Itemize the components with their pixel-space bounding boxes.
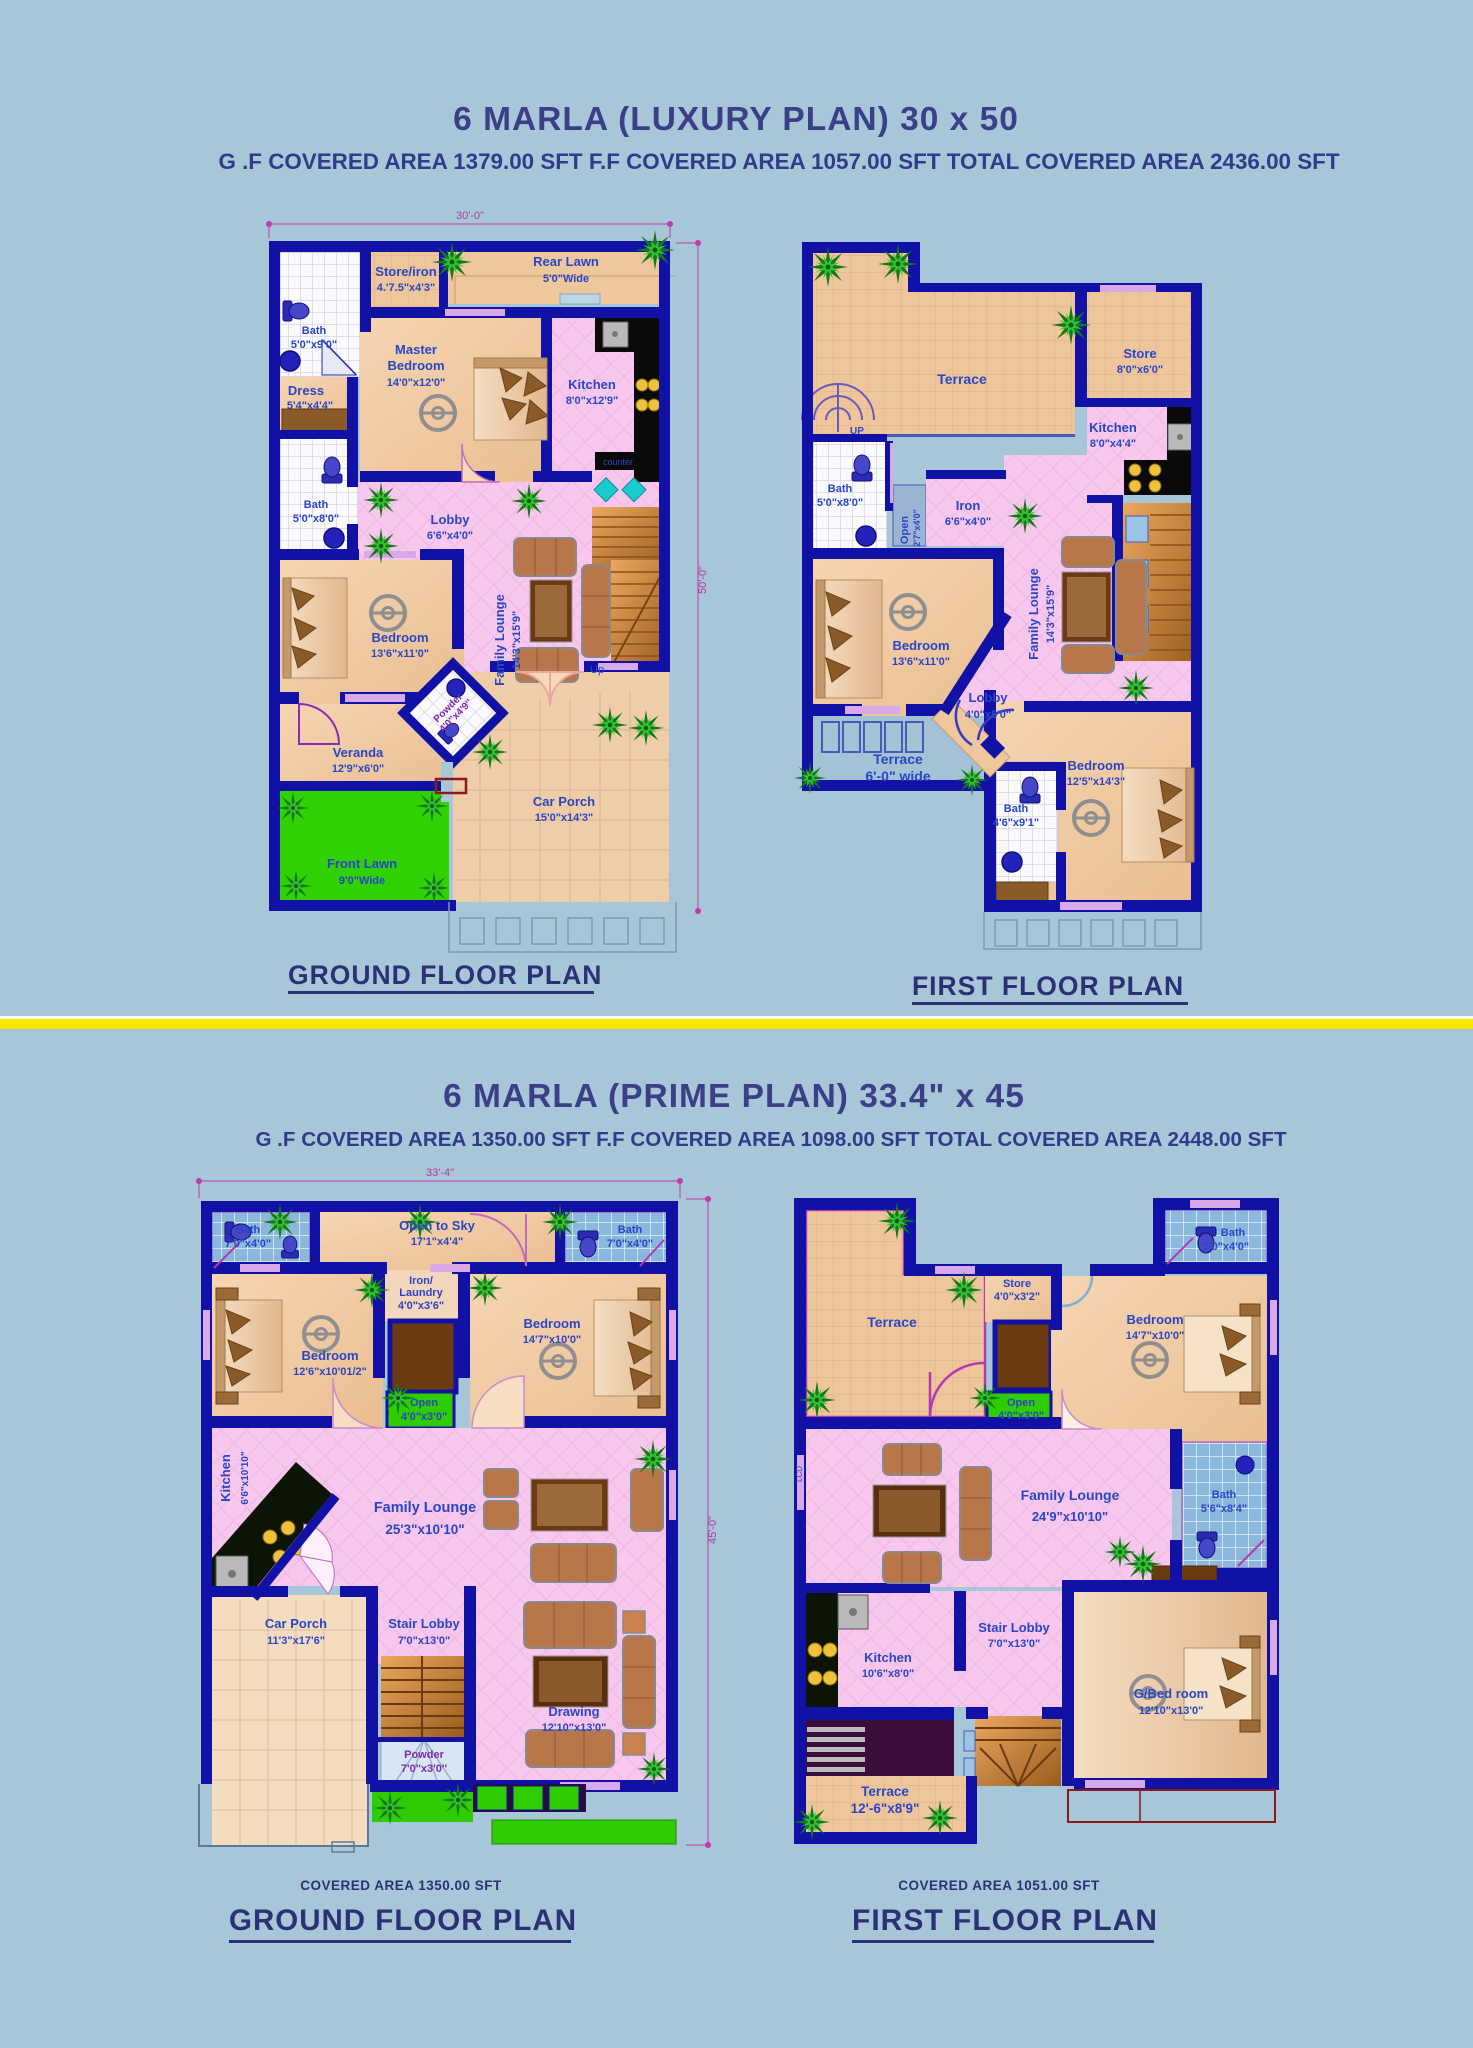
svg-text:Kitchen: Kitchen xyxy=(568,377,616,392)
svg-text:Stair Lobby: Stair Lobby xyxy=(388,1616,460,1631)
svg-text:FIRST FLOOR PLAN: FIRST FLOOR PLAN xyxy=(912,971,1184,1001)
svg-text:4'0"x3'0": 4'0"x3'0" xyxy=(401,1411,447,1423)
svg-text:7'0"x4'0": 7'0"x4'0" xyxy=(1203,1241,1249,1253)
svg-text:10'6"x8'0": 10'6"x8'0" xyxy=(862,1668,914,1680)
svg-text:Bath: Bath xyxy=(828,483,853,495)
svg-text:4.'7.5"x4'3": 4.'7.5"x4'3" xyxy=(377,282,435,294)
svg-text:6 MARLA (LUXURY PLAN) 30 x 50: 6 MARLA (LUXURY PLAN) 30 x 50 xyxy=(453,101,1019,138)
svg-text:17'1"x4'4": 17'1"x4'4" xyxy=(411,1236,463,1248)
svg-text:5'0"x8'0": 5'0"x8'0" xyxy=(817,497,863,509)
svg-text:G/Bed room: G/Bed room xyxy=(1134,1686,1208,1701)
svg-text:4'6"x9'1": 4'6"x9'1" xyxy=(993,817,1039,829)
svg-text:8'0"x12'9": 8'0"x12'9" xyxy=(566,395,618,407)
svg-text:FIRST FLOOR PLAN: FIRST FLOOR PLAN xyxy=(852,1904,1158,1937)
svg-text:13'6"x11'0": 13'6"x11'0" xyxy=(892,656,950,668)
svg-text:Car Porch: Car Porch xyxy=(533,794,595,809)
svg-text:LCD: LCD xyxy=(795,1466,804,1482)
svg-text:Family Lounge: Family Lounge xyxy=(1021,1487,1120,1503)
svg-text:Terrace: Terrace xyxy=(867,1314,917,1330)
svg-text:4'0"x3'0": 4'0"x3'0" xyxy=(998,1410,1044,1422)
svg-text:Store: Store xyxy=(1123,346,1156,361)
svg-text:13'6"x11'0": 13'6"x11'0" xyxy=(371,648,429,660)
svg-text:Family Lounge: Family Lounge xyxy=(1026,568,1041,660)
svg-text:6'6"x4'0": 6'6"x4'0" xyxy=(427,530,473,542)
svg-text:Open: Open xyxy=(410,1397,438,1409)
svg-text:Bath: Bath xyxy=(1221,1227,1246,1239)
svg-text:5'0"x9'0": 5'0"x9'0" xyxy=(291,339,337,351)
svg-text:4'0"x3'2": 4'0"x3'2" xyxy=(994,1291,1040,1303)
svg-text:50'-0": 50'-0" xyxy=(697,566,709,594)
svg-text:Bath: Bath xyxy=(302,325,327,337)
svg-text:2'7"x4'0": 2'7"x4'0" xyxy=(912,509,922,547)
svg-text:Stair Lobby: Stair Lobby xyxy=(978,1620,1050,1635)
svg-text:11'3"x17'6": 11'3"x17'6" xyxy=(267,1635,325,1647)
svg-text:Iron: Iron xyxy=(956,498,981,513)
svg-text:Open: Open xyxy=(899,516,911,544)
svg-text:Terrace: Terrace xyxy=(873,751,923,767)
svg-text:Kitchen: Kitchen xyxy=(218,1454,233,1502)
svg-text:7'0"x4'0": 7'0"x4'0" xyxy=(607,1238,653,1250)
svg-text:COVERED AREA 1051.00 SFT: COVERED AREA 1051.00 SFT xyxy=(898,1878,1100,1893)
svg-text:4'0"x3'6": 4'0"x3'6" xyxy=(398,1300,444,1312)
svg-text:Open to Sky: Open to Sky xyxy=(399,1218,476,1233)
svg-text:GROUND FLOOR PLAN: GROUND FLOOR PLAN xyxy=(288,960,602,990)
svg-text:12'9"x6'0": 12'9"x6'0" xyxy=(332,763,384,775)
svg-text:Kitchen: Kitchen xyxy=(864,1650,912,1665)
svg-text:Up: Up xyxy=(590,664,604,676)
svg-text:Bath: Bath xyxy=(618,1224,643,1236)
svg-text:6'6"x10'10": 6'6"x10'10" xyxy=(240,1451,251,1504)
svg-text:7'0"x13'0": 7'0"x13'0" xyxy=(988,1638,1040,1650)
svg-text:33'-4": 33'-4" xyxy=(426,1167,454,1179)
svg-text:25'3"x10'10": 25'3"x10'10" xyxy=(385,1522,464,1537)
svg-text:14'0"x12'0": 14'0"x12'0" xyxy=(387,377,446,389)
svg-text:Family Lounge: Family Lounge xyxy=(492,594,507,686)
svg-text:Rear Lawn: Rear Lawn xyxy=(533,254,599,269)
svg-text:Bath: Bath xyxy=(1004,803,1029,815)
svg-text:Bedroom: Bedroom xyxy=(1067,758,1124,773)
svg-text:Bath: Bath xyxy=(236,1224,261,1236)
svg-text:6 MARLA (PRIME PLAN) 33.4" x: 6 MARLA (PRIME PLAN) 33.4" x 45 xyxy=(443,1078,1025,1115)
svg-text:Car Porch: Car Porch xyxy=(265,1616,327,1631)
svg-text:Bedroom: Bedroom xyxy=(301,1348,358,1363)
svg-text:7'0"x13'0": 7'0"x13'0" xyxy=(398,1635,450,1647)
svg-text:G .F COVERED AREA 1379.00 SFT: G .F COVERED AREA 1379.00 SFT F.F COVERE… xyxy=(218,149,1339,174)
svg-text:GROUND FLOOR PLAN: GROUND FLOOR PLAN xyxy=(229,1904,577,1937)
svg-text:5'0"Wide: 5'0"Wide xyxy=(543,273,589,285)
svg-text:8'0"x4'4": 8'0"x4'4" xyxy=(1090,438,1136,450)
svg-text:8'0"x6'0": 8'0"x6'0" xyxy=(1117,364,1163,376)
svg-text:Iron/: Iron/ xyxy=(409,1275,433,1287)
svg-text:COVERED AREA 1350.00 SFT: COVERED AREA 1350.00 SFT xyxy=(300,1878,502,1893)
svg-text:Bath: Bath xyxy=(1212,1489,1237,1501)
svg-text:Laundry: Laundry xyxy=(399,1287,443,1299)
svg-text:Bedroom: Bedroom xyxy=(892,638,949,653)
svg-text:12'6"x10'01/2": 12'6"x10'01/2" xyxy=(293,1366,367,1378)
svg-text:14'7"x10'0": 14'7"x10'0" xyxy=(523,1334,582,1346)
svg-text:4'0"x5'0": 4'0"x5'0" xyxy=(965,709,1011,721)
svg-text:6'6"x4'0": 6'6"x4'0" xyxy=(945,516,991,528)
svg-text:7'0''x3'0'': 7'0''x3'0'' xyxy=(401,1763,448,1775)
svg-text:Bedroom: Bedroom xyxy=(387,358,444,373)
svg-text:Veranda: Veranda xyxy=(333,745,384,760)
svg-text:Bedroom: Bedroom xyxy=(371,630,428,645)
svg-text:Lobby: Lobby xyxy=(969,690,1009,705)
svg-text:24'9"x10'10": 24'9"x10'10" xyxy=(1032,1509,1108,1524)
svg-text:15'0"x14'3": 15'0"x14'3" xyxy=(535,812,594,824)
svg-text:Store/iron: Store/iron xyxy=(375,264,436,279)
svg-text:Bedroom: Bedroom xyxy=(1126,1312,1183,1327)
svg-text:Master: Master xyxy=(395,342,437,357)
svg-text:14'3"x15'9": 14'3"x15'9" xyxy=(1045,585,1057,644)
svg-text:5'0"x8'0": 5'0"x8'0" xyxy=(293,513,339,525)
svg-text:Store: Store xyxy=(1003,1278,1031,1290)
svg-text:counter: counter xyxy=(603,457,633,467)
svg-text:5'6"x8'4": 5'6"x8'4" xyxy=(1201,1503,1247,1515)
svg-text:Kitchen: Kitchen xyxy=(1089,420,1137,435)
svg-text:12'10"x13'0": 12'10"x13'0" xyxy=(1139,1705,1204,1717)
svg-text:14'3"x15'9": 14'3"x15'9" xyxy=(511,611,523,670)
svg-text:Terrace: Terrace xyxy=(861,1784,909,1799)
svg-text:12'5"x14'3": 12'5"x14'3" xyxy=(1067,776,1126,788)
svg-text:Bedroom: Bedroom xyxy=(523,1316,580,1331)
svg-text:9'0"Wide: 9'0"Wide xyxy=(339,875,385,887)
svg-text:Bath: Bath xyxy=(304,499,329,511)
svg-text:Lobby: Lobby xyxy=(431,512,471,527)
svg-text:14'7"x10'0": 14'7"x10'0" xyxy=(1126,1330,1185,1342)
svg-text:Front Lawn: Front Lawn xyxy=(327,856,397,871)
svg-text:7'0"x4'0": 7'0"x4'0" xyxy=(225,1238,271,1250)
svg-text:5'4"x4'4": 5'4"x4'4" xyxy=(287,400,333,412)
svg-text:Family Lounge: Family Lounge xyxy=(374,1500,476,1516)
svg-text:Powder: Powder xyxy=(404,1749,444,1761)
svg-text:30'-0": 30'-0" xyxy=(456,210,484,222)
svg-text:Open: Open xyxy=(1007,1397,1035,1409)
svg-text:12'-6"x8'9": 12'-6"x8'9" xyxy=(851,1801,920,1816)
svg-text:Terrace: Terrace xyxy=(937,371,987,387)
svg-text:G .F COVERED AREA 1350.00 SFT: G .F COVERED AREA 1350.00 SFT F.F COVERE… xyxy=(255,1128,1287,1151)
svg-text:6'-0" wide: 6'-0" wide xyxy=(865,768,930,784)
svg-text:12'10"x13'0": 12'10"x13'0" xyxy=(542,1722,607,1734)
svg-text:45'-0": 45'-0" xyxy=(707,1516,719,1544)
svg-text:Drawing: Drawing xyxy=(548,1704,599,1719)
svg-text:Dress: Dress xyxy=(288,383,324,398)
